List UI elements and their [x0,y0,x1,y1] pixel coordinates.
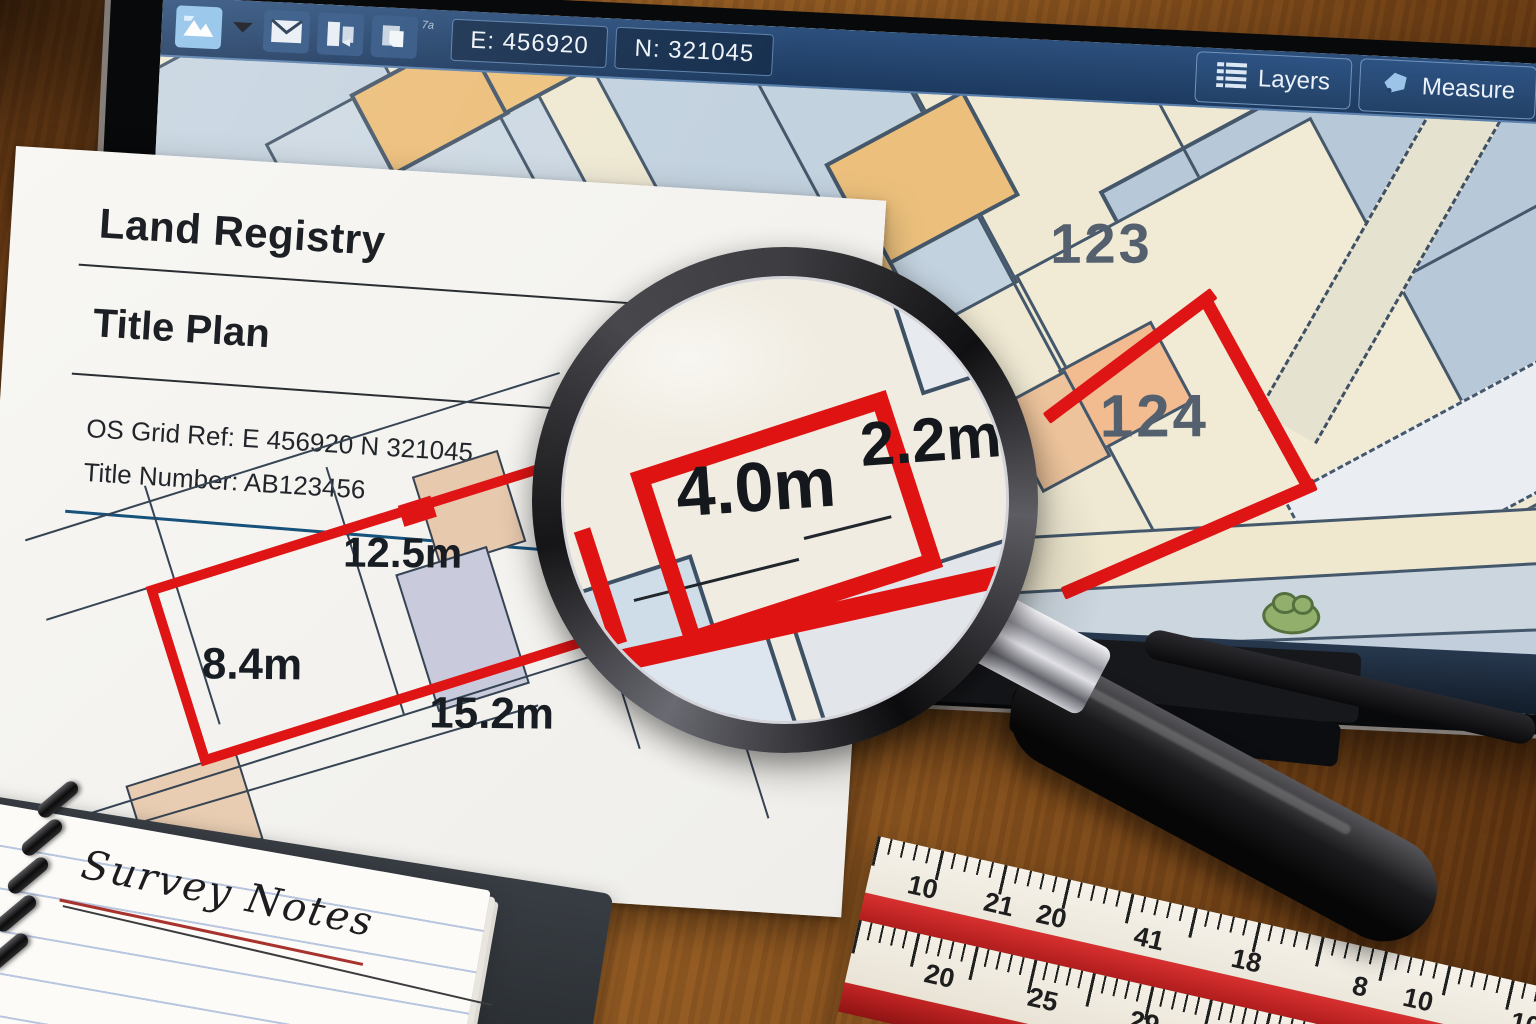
easting-readout: E: 456920 [450,19,608,69]
ruler-number: 21 [981,887,1017,924]
measurement-15-2: 15.2m [429,688,554,739]
split-view-icon[interactable] [317,12,365,56]
paper-subtitle: Title Plan [92,301,272,357]
tiny-annotation: 7a [422,19,435,32]
magnified-measurement-2-2: 2.2m [858,400,1004,481]
mail-icon[interactable] [263,9,311,53]
ruler-number: 20 [1033,898,1069,935]
measure-button[interactable]: Measure [1358,58,1536,120]
layers-list-icon [1215,61,1247,95]
ruler-number: 8 [1349,970,1371,1004]
magnified-measurement-4-0: 4.0m [673,442,838,533]
layers-button[interactable]: Layers [1194,51,1352,110]
parcel-label-124: 124 [1100,381,1209,450]
title-number: Title Number: AB123456 [83,457,367,506]
chevron-down-icon[interactable] [229,17,256,41]
measurement-12-5: 12.5m [343,528,463,577]
ruler-number: 18 [1228,943,1264,980]
copy-pages-icon[interactable]: 7a [370,15,418,59]
ruler-number: 20 [921,958,957,995]
measure-area-icon [1379,68,1411,104]
lens-glass: 4.0m 2.2m [561,276,1009,724]
ruler-number: 10 [1507,1006,1536,1024]
ruler-number: 41 [1131,921,1167,958]
ruler-number: 10 [1400,982,1436,1019]
desk-scene: 123 124 7a [0,0,1536,1024]
magnified-parcel [876,276,1009,396]
measurement-8-4: 8.4m [202,639,303,690]
parcel-label-123: 123 [1050,210,1153,275]
ruler-number: 10 [905,869,941,906]
map-app-logo-icon[interactable] [175,5,223,49]
boundary-notch [398,496,437,527]
magnifier-lens[interactable]: 4.0m 2.2m [532,247,1038,753]
layers-button-label: Layers [1257,65,1330,96]
measure-button-label: Measure [1421,73,1516,106]
ruler-number: 29 [1126,1005,1162,1024]
northing-readout: N: 321045 [615,27,775,77]
paper-title: Land Registry [98,199,387,265]
ruler-number: 25 [1025,982,1061,1019]
